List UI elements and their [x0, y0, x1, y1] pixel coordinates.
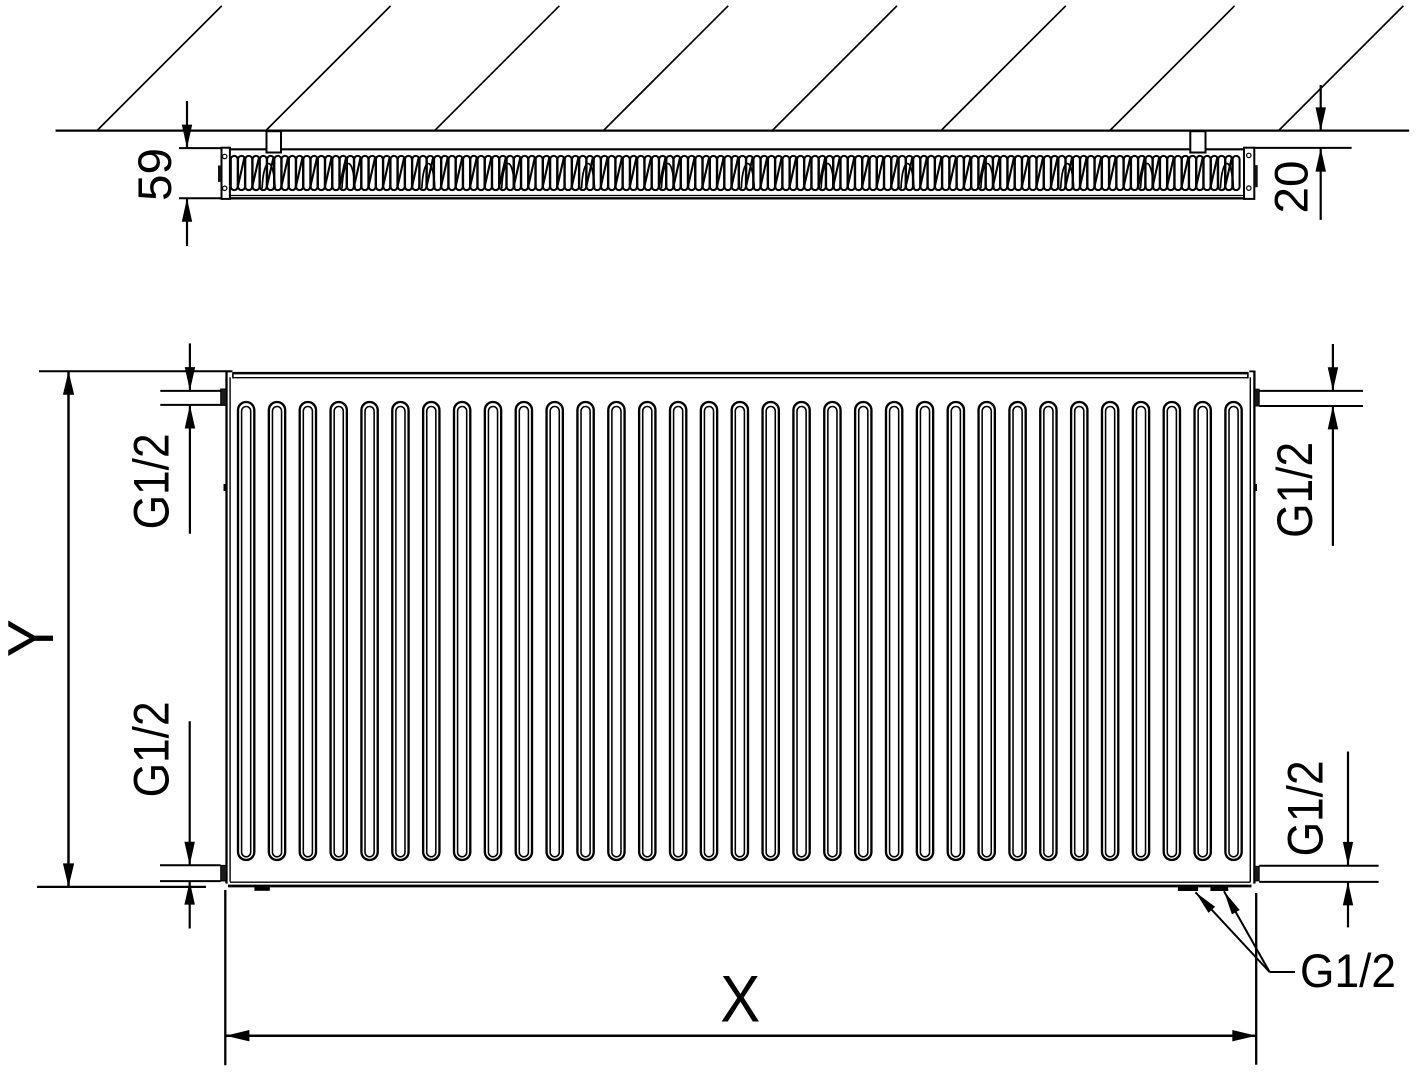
- svg-text:G1/2: G1/2: [124, 433, 180, 529]
- svg-text:G1/2: G1/2: [1278, 760, 1334, 856]
- svg-text:X: X: [720, 962, 760, 1036]
- svg-text:G1/2: G1/2: [124, 701, 180, 797]
- svg-text:59: 59: [129, 148, 182, 201]
- svg-text:20: 20: [1266, 161, 1319, 214]
- svg-text:Y: Y: [0, 619, 67, 657]
- svg-text:G1/2: G1/2: [1300, 945, 1396, 998]
- svg-text:G1/2: G1/2: [1267, 442, 1323, 538]
